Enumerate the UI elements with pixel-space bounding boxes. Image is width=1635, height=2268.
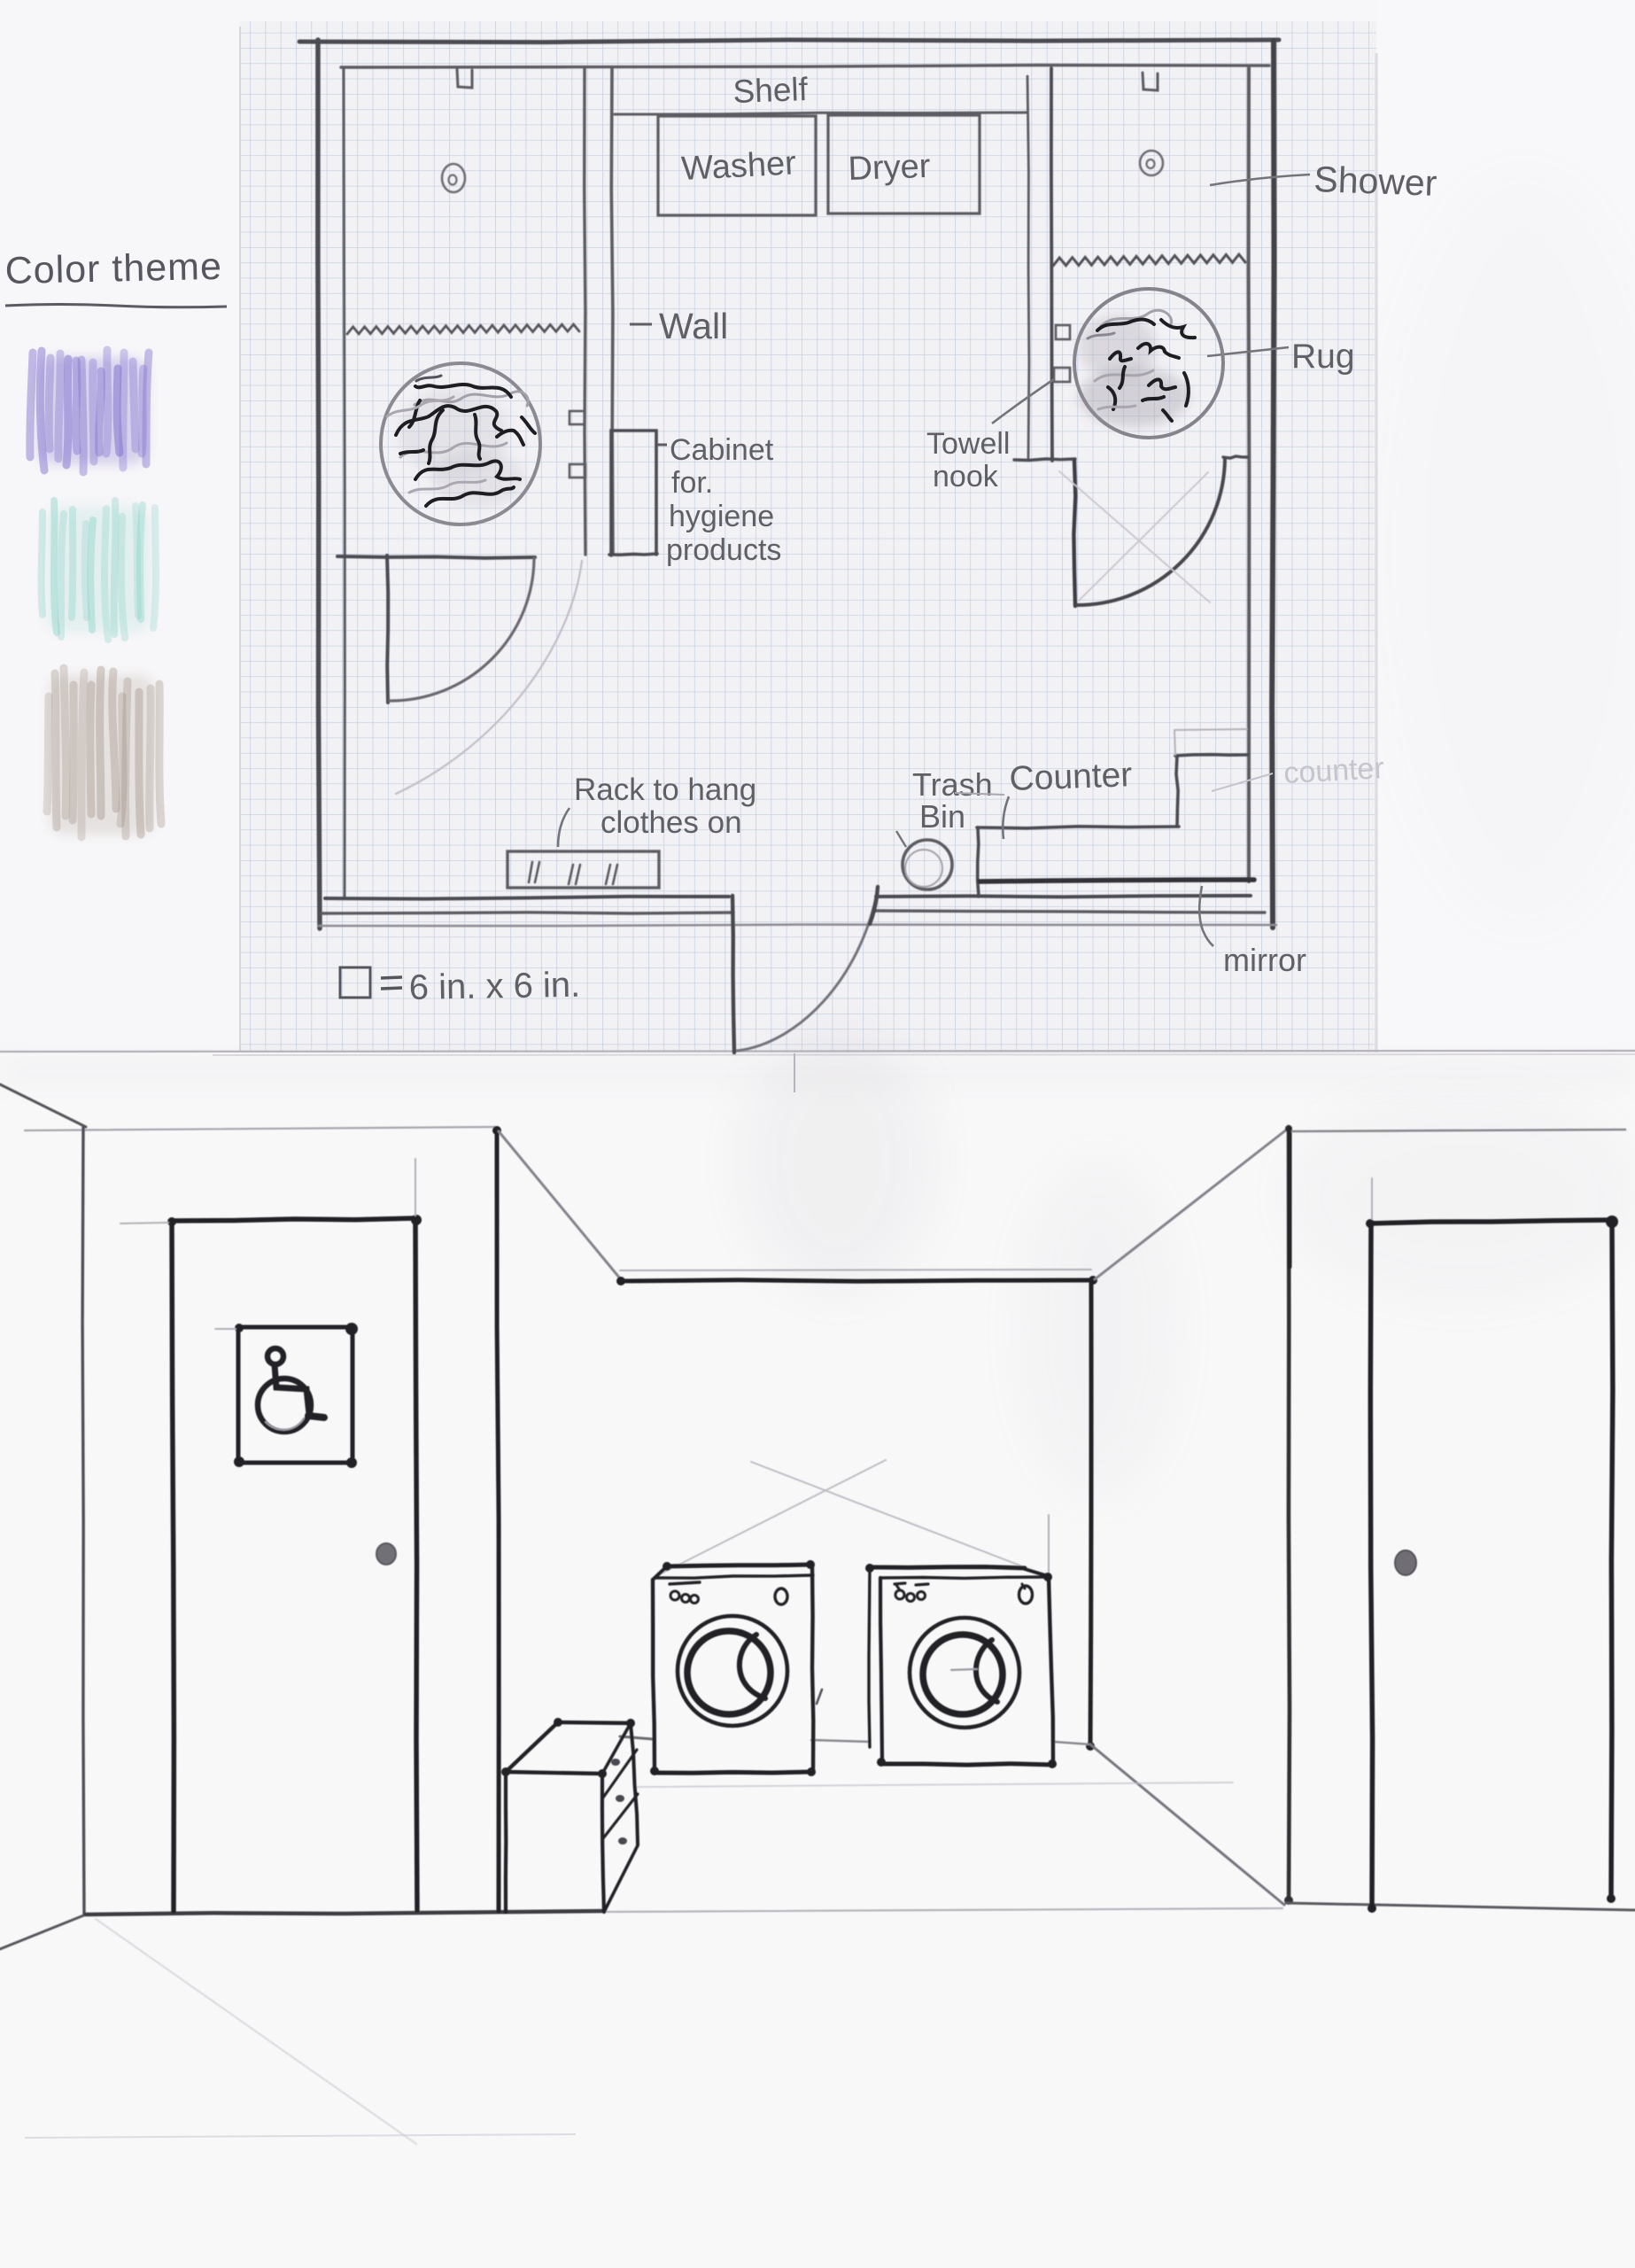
svg-text:nook: nook bbox=[933, 460, 999, 493]
svg-text:Towell: Towell bbox=[926, 427, 1010, 461]
svg-text:Color theme: Color theme bbox=[4, 245, 222, 292]
svg-text:6 in. x 6 in.: 6 in. x 6 in. bbox=[408, 966, 580, 1007]
svg-text:Bin: Bin bbox=[919, 798, 965, 835]
svg-text:Rug: Rug bbox=[1291, 338, 1355, 376]
svg-text:Shelf: Shelf bbox=[732, 71, 809, 110]
svg-text:Dryer: Dryer bbox=[848, 148, 932, 188]
svg-text:hygiene: hygiene bbox=[669, 500, 774, 533]
svg-text:clothes on: clothes on bbox=[601, 805, 742, 840]
svg-text:for.: for. bbox=[671, 466, 713, 500]
svg-text:counter: counter bbox=[1282, 751, 1384, 790]
svg-text:Trash: Trash bbox=[912, 766, 993, 803]
svg-text:Washer: Washer bbox=[680, 144, 797, 188]
svg-text:Cabinet: Cabinet bbox=[670, 433, 774, 467]
svg-text:Shower: Shower bbox=[1313, 159, 1438, 204]
svg-text:Counter: Counter bbox=[1009, 756, 1133, 798]
svg-text:mirror: mirror bbox=[1223, 942, 1306, 978]
svg-text:Wall: Wall bbox=[659, 306, 728, 346]
svg-text:products: products bbox=[666, 533, 781, 567]
svg-text:Rack to hang: Rack to hang bbox=[574, 773, 756, 807]
